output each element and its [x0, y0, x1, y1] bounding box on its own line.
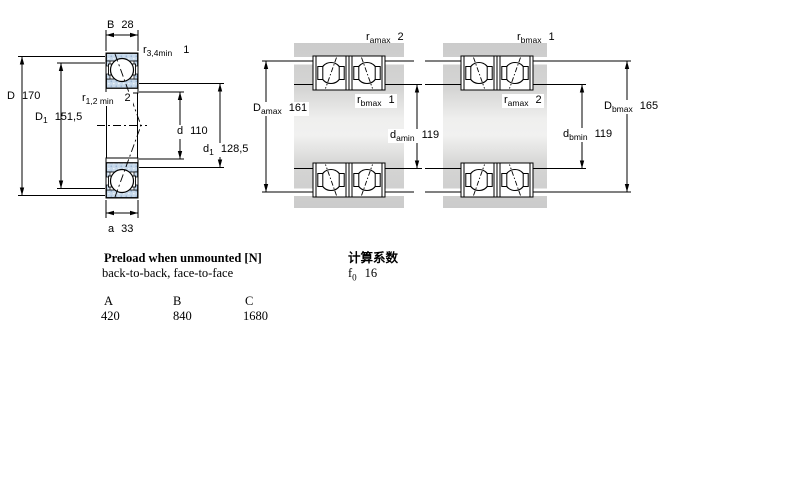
dim-label-Damax: Damax161: [251, 102, 309, 116]
dim-label-ramax-mid: ramax2: [366, 31, 404, 45]
dim-label-a: a33: [108, 223, 133, 237]
calculation-factors-title: 计算系数: [348, 251, 398, 265]
dim-label-d: d110: [175, 125, 210, 139]
preload-title: Preload when unmounted [N]: [104, 251, 262, 265]
preload-value-c: 1680: [243, 309, 268, 323]
dim-label-rbmax-right: rbmax1: [517, 31, 555, 45]
calculation-factor-f0: f016: [348, 266, 377, 283]
paired-bearings-face-to-face: [425, 43, 631, 208]
dim-label-B: B28: [107, 19, 134, 33]
preload-value-a: 420: [101, 309, 120, 323]
preload-col-header-c: C: [245, 294, 253, 308]
preload-value-b: 840: [173, 309, 192, 323]
dim-label-D: D170: [7, 90, 40, 104]
bearing-drawing-page: B28 r3,4min1 D170 D1151,5 r1,2 min2 d110…: [0, 0, 800, 500]
preload-col-header-b: B: [173, 294, 181, 308]
preload-col-header-a: A: [104, 294, 113, 308]
dim-label-dbmin: dbmin119: [561, 128, 614, 142]
dim-label-r12min: r1,2 min2: [80, 92, 133, 106]
dim-label-D1: D1151,5: [35, 111, 82, 125]
dim-label-r34min: r3,4min1: [143, 44, 189, 58]
dim-label-ramax-right: ramax2: [502, 94, 544, 108]
dim-label-Dbmax: Dbmax165: [602, 100, 660, 114]
dim-label-rbmax-mid: rbmax1: [355, 94, 397, 108]
single-bearing-cross-section: [97, 53, 147, 198]
paired-bearings-back-to-back: [262, 43, 422, 208]
technical-drawing-canvas: [0, 0, 800, 500]
dim-label-damin: damin119: [388, 129, 441, 143]
dim-label-d1: d1128,5: [201, 143, 250, 157]
preload-subtitle: back-to-back, face-to-face: [102, 266, 233, 280]
